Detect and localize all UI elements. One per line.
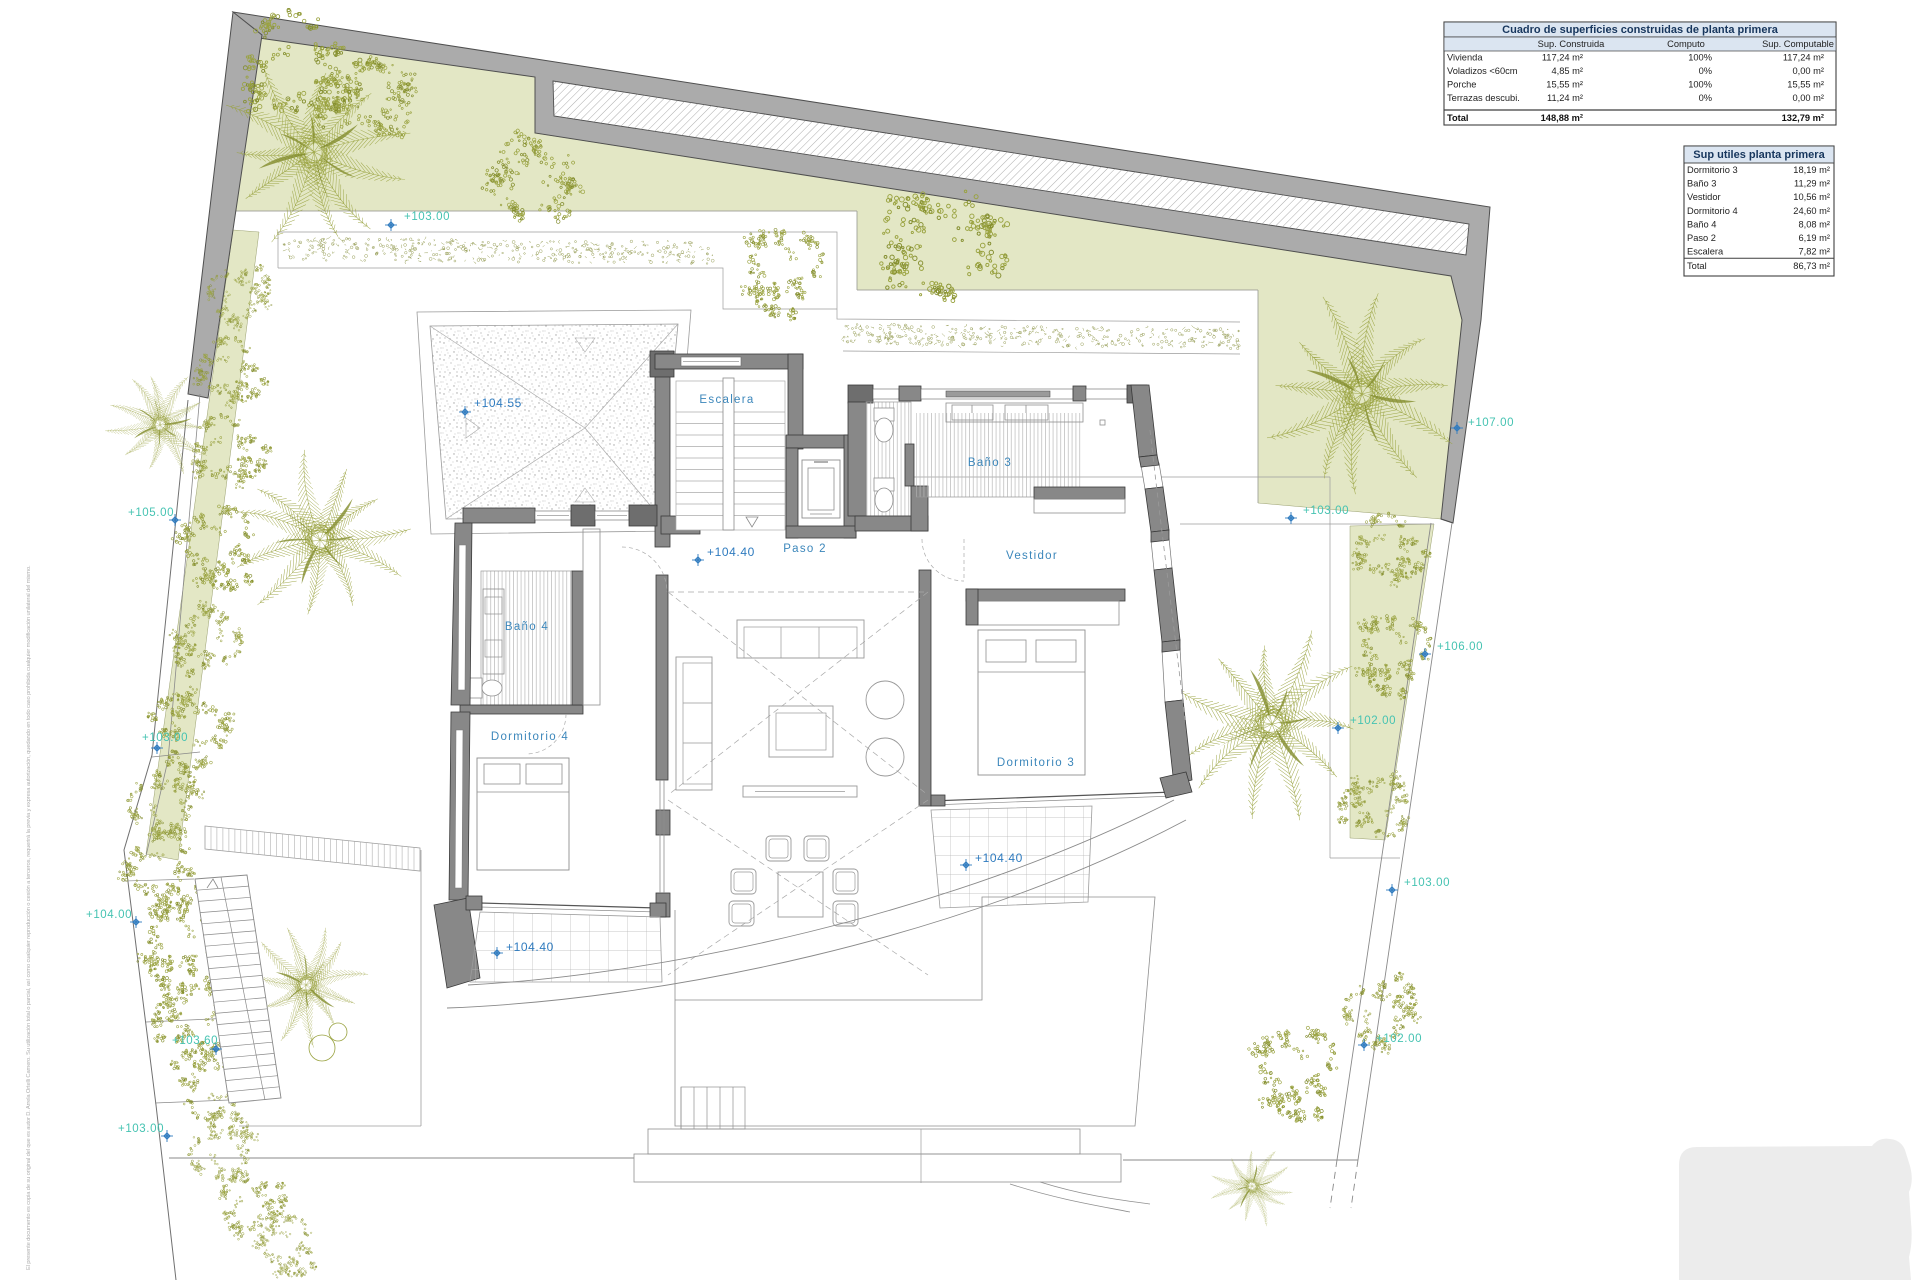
svg-text:+105.00: +105.00 — [128, 507, 174, 519]
svg-text:+103.00: +103.00 — [142, 732, 188, 744]
svg-text:+107.00: +107.00 — [1468, 417, 1514, 429]
svg-text:Cuadro de superficies construi: Cuadro de superficies construidas de pla… — [1502, 24, 1779, 36]
svg-text:8,08 m²: 8,08 m² — [1798, 219, 1830, 229]
svg-text:Total: Total — [1687, 261, 1707, 271]
svg-text:0,00 m²: 0,00 m² — [1792, 93, 1824, 103]
svg-text:148,88 m²: 148,88 m² — [1541, 113, 1583, 123]
svg-text:Terrazas descubi.: Terrazas descubi. — [1447, 93, 1520, 103]
svg-text:6,19 m²: 6,19 m² — [1798, 233, 1830, 243]
svg-text:+103.00: +103.00 — [118, 1123, 164, 1135]
svg-text:24,60 m²: 24,60 m² — [1793, 206, 1830, 216]
svg-text:Escalera: Escalera — [699, 394, 754, 406]
svg-text:Dormitorio 3: Dormitorio 3 — [1687, 165, 1738, 175]
svg-text:Vestidor: Vestidor — [1006, 550, 1058, 562]
svg-text:Sup. Construida: Sup. Construida — [1538, 39, 1605, 49]
svg-text:86,73 m²: 86,73 m² — [1793, 261, 1830, 271]
svg-text:Dormitorio 4: Dormitorio 4 — [1687, 206, 1738, 216]
svg-text:0,00 m²: 0,00 m² — [1792, 66, 1824, 76]
svg-text:0%: 0% — [1699, 66, 1712, 76]
svg-text:7,82 m²: 7,82 m² — [1798, 247, 1830, 257]
svg-text:Dormitorio 3: Dormitorio 3 — [997, 757, 1075, 769]
svg-text:11,24 m²: 11,24 m² — [1547, 93, 1583, 103]
svg-text:Baño 3: Baño 3 — [1687, 179, 1716, 189]
svg-text:+103.00: +103.00 — [1303, 505, 1349, 517]
svg-text:117,24 m²: 117,24 m² — [1542, 53, 1583, 63]
svg-text:Vestidor: Vestidor — [1687, 192, 1721, 202]
svg-text:Dormitorio 4: Dormitorio 4 — [491, 731, 569, 743]
svg-text:Baño 3: Baño 3 — [968, 457, 1012, 469]
svg-text:+103.60: +103.60 — [172, 1035, 218, 1047]
svg-text:Voladizos <60cm: Voladizos <60cm — [1447, 66, 1518, 76]
svg-text:100%: 100% — [1688, 80, 1712, 90]
svg-text:+104.40: +104.40 — [506, 940, 554, 954]
svg-text:+102.00: +102.00 — [1376, 1033, 1422, 1045]
svg-text:15,55 m²: 15,55 m² — [1546, 80, 1583, 90]
svg-text:+104.00: +104.00 — [86, 909, 132, 921]
svg-text:132,79 m²: 132,79 m² — [1782, 113, 1824, 123]
svg-text:4,85 m²: 4,85 m² — [1551, 66, 1583, 76]
svg-text:18,19 m²: 18,19 m² — [1793, 165, 1830, 175]
svg-text:10,56 m²: 10,56 m² — [1793, 192, 1830, 202]
svg-text:Vivienda: Vivienda — [1447, 53, 1483, 63]
svg-text:Paso 2: Paso 2 — [783, 543, 827, 555]
svg-text:Paso 2: Paso 2 — [1687, 233, 1716, 243]
svg-text:11,29 m²: 11,29 m² — [1794, 179, 1830, 189]
svg-text:0%: 0% — [1699, 93, 1712, 103]
svg-text:+103.00: +103.00 — [1404, 877, 1450, 889]
svg-text:+104.40: +104.40 — [975, 851, 1023, 865]
svg-text:Sup utiles planta primera: Sup utiles planta primera — [1693, 149, 1825, 161]
svg-text:+106.00: +106.00 — [1437, 641, 1483, 653]
svg-text:Total: Total — [1447, 113, 1469, 123]
svg-text:+104.40: +104.40 — [707, 545, 755, 559]
svg-text:15,55 m²: 15,55 m² — [1787, 80, 1824, 90]
svg-text:Sup. Computable: Sup. Computable — [1762, 39, 1834, 49]
svg-text:Baño 4: Baño 4 — [1687, 219, 1716, 229]
svg-text:Baño 4: Baño 4 — [505, 621, 549, 633]
svg-text:+102.00: +102.00 — [1350, 715, 1396, 727]
svg-text:Porche: Porche — [1447, 80, 1476, 90]
svg-text:El presente documento es copia: El presente documento es copia de su ori… — [26, 565, 32, 1270]
svg-text:+104.55: +104.55 — [474, 396, 522, 410]
svg-text:Computo: Computo — [1667, 39, 1705, 49]
svg-text:Escalera: Escalera — [1687, 247, 1724, 257]
svg-text:117,24 m²: 117,24 m² — [1783, 53, 1824, 63]
svg-text:+103.00: +103.00 — [404, 211, 450, 223]
svg-text:100%: 100% — [1688, 53, 1712, 63]
